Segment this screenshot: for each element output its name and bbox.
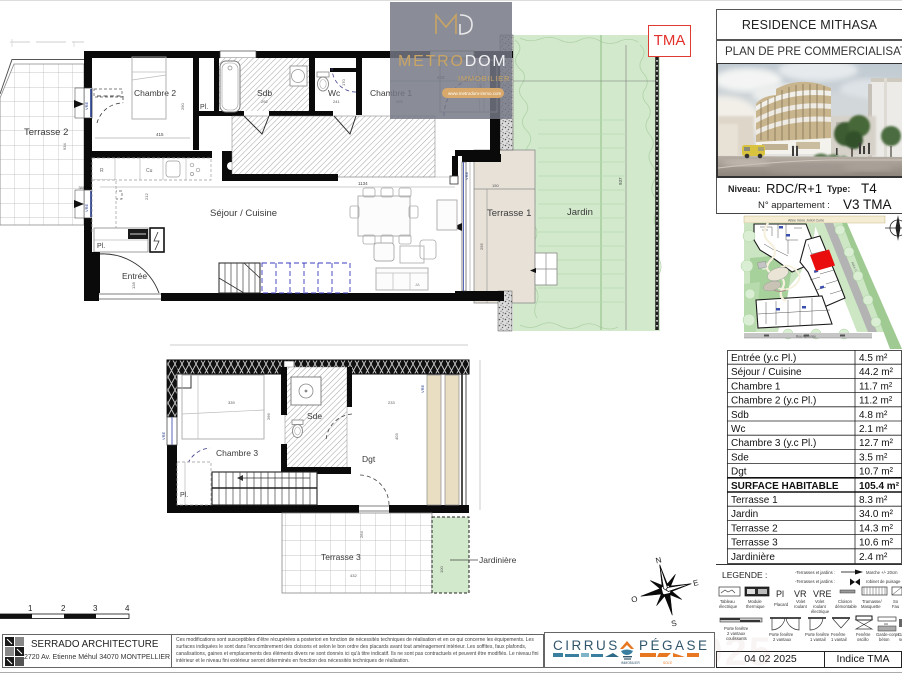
svg-text:937: 937	[618, 177, 623, 185]
svg-text:Allée Irène Joliot Curie: Allée Irène Joliot Curie	[788, 219, 824, 223]
svg-text:266: 266	[266, 413, 271, 420]
svg-text:Sdb: Sdb	[257, 88, 272, 98]
svg-text:Chambre 3: Chambre 3	[216, 448, 258, 458]
svg-text:4: 4	[125, 604, 130, 613]
svg-text:VRE: VRE	[813, 589, 832, 599]
svg-text:roulant: roulant	[794, 604, 808, 609]
svg-text:432: 432	[350, 573, 357, 578]
svg-text:10.6 m²: 10.6 m²	[859, 538, 894, 549]
svg-text:Pl: Pl	[776, 589, 784, 599]
svg-text:N: N	[655, 555, 663, 565]
svg-text:IMMOBILIER: IMMOBILIER	[621, 661, 640, 665]
svg-text:robinet de puisage: robinet de puisage	[866, 579, 901, 584]
svg-text:SOL'E: SOL'E	[663, 661, 672, 665]
svg-text:Marche +/- 20cm: Marche +/- 20cm	[866, 570, 898, 575]
svg-text:Sde: Sde	[307, 411, 322, 421]
svg-text:415: 415	[156, 132, 164, 137]
svg-text:Rue Alphonse: Rue Alphonse	[796, 335, 816, 339]
svg-text:VRE: VRE	[161, 431, 166, 440]
svg-text:128: 128	[131, 282, 136, 289]
svg-text:403: 403	[394, 433, 399, 440]
svg-text:1134: 1134	[358, 181, 368, 186]
svg-text:2.1 m²: 2.1 m²	[859, 424, 888, 435]
svg-text:Entrée: Entrée	[122, 271, 147, 281]
svg-text:264: 264	[359, 531, 364, 538]
svg-text:212: 212	[144, 193, 149, 200]
svg-text:11.2 m²: 11.2 m²	[859, 396, 893, 407]
svg-text:12.7 m²: 12.7 m²	[859, 438, 894, 449]
svg-text:290: 290	[180, 103, 185, 110]
svg-text:1: 1	[28, 604, 33, 613]
svg-text:Sdb: Sdb	[731, 410, 749, 421]
svg-text:PÉGASE: PÉGASE	[639, 638, 710, 653]
svg-text:4.8 m²: 4.8 m²	[859, 410, 888, 421]
svg-text:11.7 m²: 11.7 m²	[859, 381, 893, 392]
svg-text:4.5 m²: 4.5 m²	[859, 353, 888, 364]
svg-text:R: R	[100, 168, 104, 174]
svg-text:Wc: Wc	[731, 424, 745, 435]
svg-text:Cu: Cu	[146, 168, 153, 174]
svg-text:Jardinière: Jardinière	[731, 552, 775, 563]
svg-text:339: 339	[228, 400, 235, 405]
svg-text:100: 100	[439, 566, 444, 573]
svg-text:Fau: Fau	[892, 604, 900, 609]
svg-text:S: S	[670, 619, 677, 629]
svg-text:34.0 m²: 34.0 m²	[859, 509, 894, 520]
svg-text:170: 170	[341, 79, 346, 86]
svg-text:Terrasse 2: Terrasse 2	[731, 523, 778, 534]
svg-text:Terrasse 2: Terrasse 2	[24, 127, 68, 138]
svg-text:électrique: électrique	[811, 609, 830, 614]
svg-text:JA: JA	[415, 282, 420, 287]
svg-text:Chambre 2 (y.c Pl.): Chambre 2 (y.c Pl.)	[731, 396, 816, 407]
svg-text:Terrasse 1: Terrasse 1	[731, 495, 778, 506]
svg-text:thermique: thermique	[746, 604, 765, 609]
svg-text:www.metrodom-immo.com: www.metrodom-immo.com	[448, 91, 502, 96]
svg-text:CIRRUS: CIRRUS	[553, 638, 620, 653]
svg-text:VRE: VRE	[420, 384, 425, 393]
svg-text:Pl.: Pl.	[200, 104, 208, 111]
svg-text:Entrée (y.c Pl.): Entrée (y.c Pl.)	[731, 353, 796, 364]
svg-text:10.7 m²: 10.7 m²	[859, 467, 894, 478]
svg-text:Terrasse 3: Terrasse 3	[731, 538, 778, 549]
svg-text:Masquette: Masquette	[861, 604, 881, 609]
svg-text:Wc: Wc	[328, 88, 341, 98]
svg-text:Terrasse 3: Terrasse 3	[321, 552, 361, 562]
svg-text:Dgt: Dgt	[731, 467, 747, 478]
svg-text:Chambre 2: Chambre 2	[134, 88, 176, 98]
svg-text:METRODOM: METRODOM	[398, 53, 508, 70]
svg-text:295: 295	[479, 243, 484, 250]
svg-text:VRE: VRE	[464, 171, 469, 180]
svg-text:Jardin: Jardin	[731, 509, 758, 520]
svg-text:105.4 m²: 105.4 m²	[859, 481, 900, 492]
svg-text:44.2 m²: 44.2 m²	[859, 367, 894, 378]
svg-text:3: 3	[93, 604, 98, 613]
svg-text:-Terrasses et jardins :: -Terrasses et jardins :	[795, 570, 835, 575]
svg-text:Jardinière: Jardinière	[479, 555, 517, 565]
svg-text:Séjour / Cuisine: Séjour / Cuisine	[210, 208, 277, 219]
svg-text:-Terrasses et jardins :: -Terrasses et jardins :	[795, 579, 835, 584]
svg-text:Chambre 1: Chambre 1	[731, 381, 781, 392]
svg-text:électrique: électrique	[719, 604, 738, 609]
svg-text:3.5 m²: 3.5 m²	[859, 452, 888, 463]
svg-text:241: 241	[333, 99, 340, 104]
svg-text:Sde: Sde	[731, 452, 749, 463]
svg-text:ou: ou	[884, 622, 888, 626]
svg-text:Chambre 3 (y.c Pl.): Chambre 3 (y.c Pl.)	[731, 438, 816, 449]
svg-text:démontable: démontable	[835, 604, 858, 609]
svg-text:2: 2	[61, 604, 66, 613]
svg-text:E: E	[692, 578, 699, 588]
svg-text:233: 233	[388, 400, 395, 405]
svg-text:IMMOBILIER: IMMOBILIER	[458, 74, 510, 83]
svg-text:O: O	[630, 594, 638, 604]
svg-text:VR: VR	[794, 589, 807, 599]
svg-text:Séjour / Cuisine: Séjour / Cuisine	[731, 367, 802, 378]
svg-text:Pl.: Pl.	[180, 492, 188, 499]
svg-text:Terrasse 1: Terrasse 1	[487, 208, 531, 219]
svg-text:Placard: Placard	[774, 602, 789, 607]
svg-text:934: 934	[62, 143, 67, 150]
svg-text:2.4 m²: 2.4 m²	[859, 552, 888, 563]
svg-text:Dgt: Dgt	[362, 454, 376, 464]
svg-text:292: 292	[261, 99, 268, 104]
svg-text:Jardin: Jardin	[567, 207, 593, 218]
svg-text:Pl.: Pl.	[97, 243, 105, 250]
svg-text:VRE: VRE	[84, 101, 89, 110]
svg-text:8.3 m²: 8.3 m²	[859, 495, 888, 506]
svg-text:VRE: VRE	[84, 203, 89, 212]
svg-text:SURFACE HABITABLE: SURFACE HABITABLE	[731, 481, 839, 492]
svg-text:150: 150	[492, 183, 499, 188]
svg-text:14.3 m²: 14.3 m²	[859, 523, 894, 534]
